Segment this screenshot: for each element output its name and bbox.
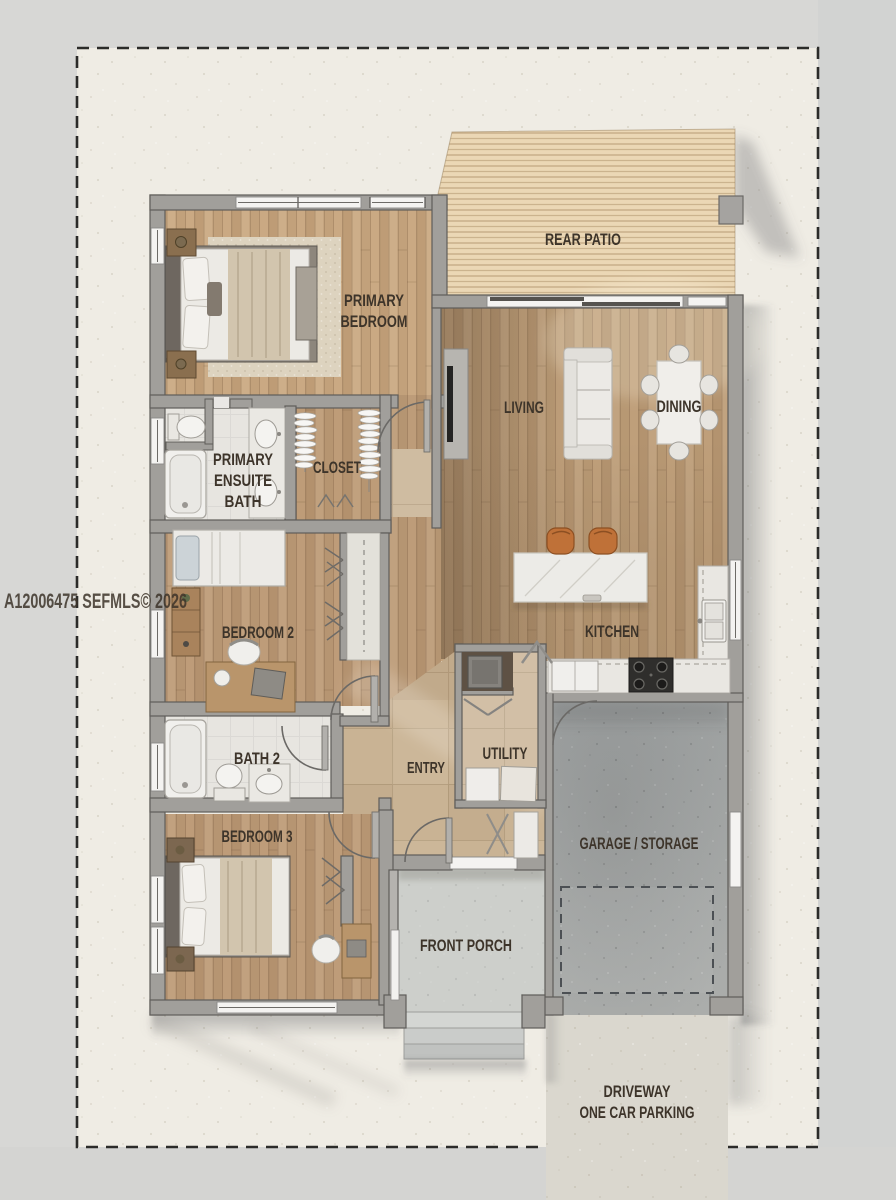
svg-text:ENSUITE: ENSUITE [214, 471, 272, 490]
svg-text:A12006475 SEFMLS© 2026: A12006475 SEFMLS© 2026 [4, 590, 187, 613]
svg-text:LIVING: LIVING [504, 398, 544, 417]
svg-text:BEDROOM 2: BEDROOM 2 [222, 623, 294, 642]
svg-text:BEDROOM 3: BEDROOM 3 [222, 827, 293, 846]
svg-text:BATH 2: BATH 2 [234, 749, 280, 768]
svg-text:PRIMARY: PRIMARY [213, 450, 274, 469]
svg-text:DRIVEWAY: DRIVEWAY [604, 1082, 671, 1101]
svg-text:KITCHEN: KITCHEN [585, 622, 639, 641]
svg-text:FRONT PORCH: FRONT PORCH [420, 936, 512, 955]
svg-text:CLOSET: CLOSET [313, 458, 361, 477]
svg-text:DINING: DINING [657, 397, 702, 416]
svg-text:GARAGE / STORAGE: GARAGE / STORAGE [580, 834, 699, 853]
svg-text:BATH: BATH [225, 492, 262, 511]
svg-text:ENTRY: ENTRY [407, 760, 445, 777]
svg-text:REAR PATIO: REAR PATIO [545, 230, 621, 249]
svg-text:BEDROOM: BEDROOM [341, 312, 408, 331]
svg-text:UTILITY: UTILITY [483, 744, 528, 763]
svg-text:PRIMARY: PRIMARY [344, 291, 405, 310]
svg-text:ONE CAR PARKING: ONE CAR PARKING [580, 1103, 695, 1122]
